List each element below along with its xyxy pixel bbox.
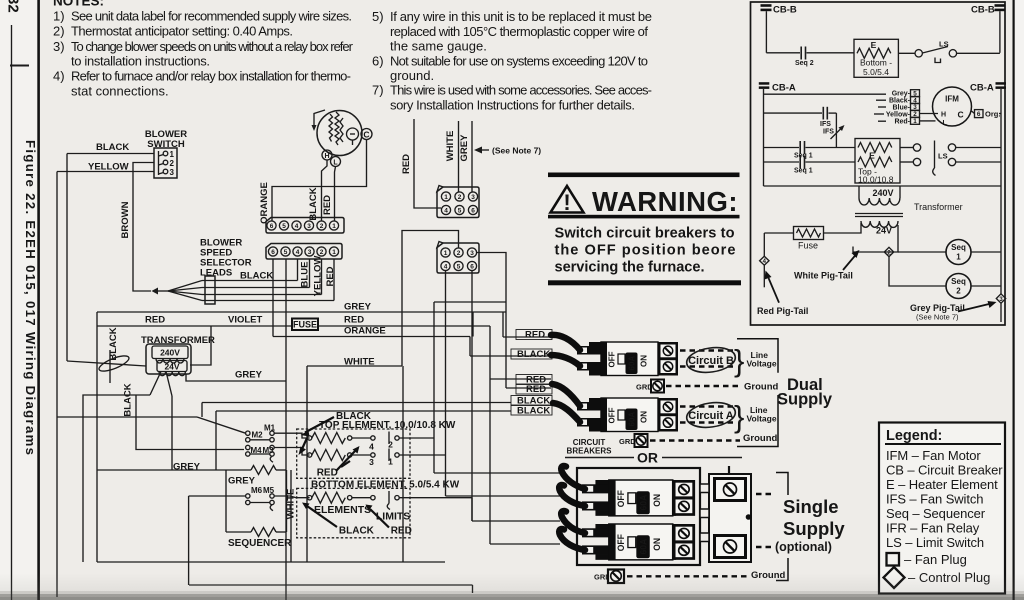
svg-text:3): 3) — [53, 39, 65, 54]
svg-text:RED: RED — [344, 315, 364, 326]
svg-text:servicing the furnace.: servicing the furnace. — [555, 260, 705, 276]
svg-text:3: 3 — [470, 250, 474, 257]
svg-text:2: 2 — [913, 111, 917, 118]
svg-text:240V: 240V — [160, 348, 180, 358]
svg-text:7): 7) — [372, 83, 384, 98]
svg-text:See unit data label for recomm: See unit data label for recommended supp… — [71, 9, 352, 24]
svg-text:3: 3 — [471, 194, 475, 201]
svg-text:the same gauge.: the same gauge. — [390, 39, 487, 54]
svg-text:1: 1 — [170, 150, 175, 159]
svg-text:Refer to furnace and/or relay: Refer to furnace and/or relay box instal… — [71, 69, 351, 84]
svg-text:1: 1 — [444, 194, 448, 201]
svg-text:6: 6 — [470, 264, 474, 271]
svg-text:Grey Pig-Tail: Grey Pig-Tail — [910, 303, 965, 313]
svg-text:H: H — [324, 153, 329, 160]
svg-text:Grey-: Grey- — [892, 91, 911, 98]
svg-text:6): 6) — [372, 54, 384, 69]
svg-text:BLACK: BLACK — [517, 349, 550, 360]
svg-text:Org.: Org. — [985, 110, 1000, 119]
svg-text:6: 6 — [977, 111, 981, 118]
svg-text:Seq 1: Seq 1 — [794, 168, 813, 175]
svg-text:Bottom -: Bottom - — [860, 58, 892, 68]
svg-text:4: 4 — [296, 249, 300, 256]
svg-text:1: 1 — [332, 249, 336, 256]
svg-text:5: 5 — [457, 264, 461, 271]
svg-text:6: 6 — [270, 223, 274, 230]
svg-text:3: 3 — [308, 249, 312, 256]
svg-text:2): 2) — [53, 24, 65, 39]
svg-text:Red-: Red- — [894, 119, 910, 126]
svg-text:Figure 22. E2EH 015, 017 Wirin: Figure 22. E2EH 015, 017 Wiring Diagrams — [23, 140, 38, 455]
svg-text:the OFF position beore: the OFF position beore — [555, 243, 736, 259]
svg-text:!: ! — [563, 190, 570, 215]
svg-text:IFS: IFS — [820, 121, 831, 128]
svg-text:BROWN: BROWN — [120, 201, 131, 238]
svg-text:If any wire in this unit is to: If any wire in this unit is to be replac… — [390, 9, 652, 24]
svg-text:24V: 24V — [164, 362, 179, 372]
svg-text:Red Pig-Tail: Red Pig-Tail — [757, 306, 808, 316]
svg-text:To change blower speeds on uni: To change blower speeds on units without… — [71, 39, 354, 54]
svg-text:4: 4 — [444, 264, 448, 271]
svg-text:FUSE: FUSE — [293, 320, 317, 330]
svg-text:RED: RED — [322, 195, 333, 215]
svg-text:stat connections.: stat connections. — [71, 84, 169, 99]
svg-text:5: 5 — [458, 208, 462, 215]
svg-text:10.0/10.8: 10.0/10.8 — [858, 175, 894, 185]
svg-text:Transformer: Transformer — [914, 202, 963, 212]
svg-text:C: C — [363, 130, 369, 140]
svg-text:GREY: GREY — [235, 370, 263, 381]
svg-text:ORANGE: ORANGE — [344, 326, 386, 337]
svg-text:CB-B: CB-B — [971, 5, 995, 16]
svg-text:Switch circuit breakers to: Switch circuit breakers to — [555, 226, 735, 242]
svg-text:sory Installation Instructions: sory Installation Instructions for furth… — [390, 98, 635, 113]
svg-text:ORANGE: ORANGE — [259, 182, 270, 224]
svg-text:240V: 240V — [872, 188, 893, 198]
svg-text:IFS: IFS — [823, 129, 834, 136]
svg-text:L: L — [333, 160, 338, 167]
svg-text:Ground: Ground — [744, 382, 778, 393]
svg-text:6: 6 — [271, 249, 275, 256]
svg-text:L: L — [943, 120, 948, 127]
svg-text:RED: RED — [401, 154, 412, 174]
svg-text:E: E — [871, 40, 877, 50]
svg-text:LS: LS — [938, 152, 948, 161]
svg-text:2: 2 — [457, 250, 461, 257]
svg-text:2: 2 — [320, 249, 324, 256]
svg-text:Blue-: Blue- — [893, 104, 911, 111]
svg-text:replaced with 105°C thermoplas: replaced with 105°C thermoplastic copper… — [390, 24, 648, 39]
svg-text:3: 3 — [913, 104, 917, 111]
svg-text:WARNING:: WARNING: — [592, 186, 738, 217]
svg-text:RED: RED — [526, 384, 546, 395]
svg-text:GREY: GREY — [459, 134, 470, 162]
svg-text:IFM: IFM — [945, 95, 959, 104]
svg-text:1): 1) — [53, 9, 65, 24]
svg-text:4: 4 — [444, 208, 448, 215]
svg-text:WHITE: WHITE — [445, 131, 456, 162]
svg-text:2: 2 — [458, 194, 462, 201]
svg-text:BLACK: BLACK — [96, 142, 129, 153]
svg-text:Seq 1: Seq 1 — [794, 153, 813, 160]
svg-text:Not suitable for use on system: Not suitable for use on systems exceedin… — [390, 54, 648, 69]
svg-text:3: 3 — [307, 223, 311, 230]
svg-text:24V: 24V — [876, 226, 892, 236]
svg-text:Thermostat anticipator setting: Thermostat anticipator setting: 0.40 Amp… — [71, 24, 293, 39]
svg-text:Yellow-: Yellow- — [886, 111, 911, 118]
svg-text:Seq: Seq — [951, 243, 966, 252]
svg-text:4): 4) — [53, 69, 65, 84]
svg-text:(See Note 7): (See Note 7) — [492, 146, 541, 156]
svg-text:1: 1 — [913, 118, 917, 125]
svg-text:to installation instructions.: to installation instructions. — [71, 54, 210, 69]
svg-text:E: E — [869, 151, 875, 161]
svg-text:5): 5) — [372, 9, 384, 24]
svg-text:3: 3 — [170, 168, 175, 177]
svg-text:1: 1 — [444, 250, 448, 257]
svg-text:RED: RED — [145, 315, 165, 326]
svg-text:VIOLET: VIOLET — [228, 315, 263, 326]
svg-text:4: 4 — [295, 223, 299, 230]
svg-text:Voltage: Voltage — [747, 359, 777, 369]
svg-text:5: 5 — [284, 249, 288, 256]
svg-text:5: 5 — [282, 223, 286, 230]
svg-text:BLACK: BLACK — [517, 405, 550, 416]
svg-text:Seq: Seq — [951, 277, 966, 286]
svg-text:White Pig-Tail: White Pig-Tail — [794, 271, 853, 281]
svg-text:Seq 2: Seq 2 — [795, 60, 814, 67]
svg-text:C: C — [958, 110, 964, 120]
svg-text:6: 6 — [471, 208, 475, 215]
svg-text:}: } — [734, 343, 744, 378]
svg-text:1: 1 — [332, 223, 336, 230]
svg-text:5: 5 — [913, 90, 917, 97]
svg-text:32: 32 — [5, 0, 22, 13]
svg-text:RED: RED — [525, 330, 545, 341]
svg-text:GREY: GREY — [344, 302, 372, 313]
svg-text:1: 1 — [956, 253, 961, 262]
svg-text:BLACK: BLACK — [308, 187, 319, 220]
svg-text:CB-A: CB-A — [970, 83, 994, 94]
svg-text:CB-B: CB-B — [773, 5, 797, 16]
svg-text:Fuse: Fuse — [798, 241, 818, 251]
svg-text:CB-A: CB-A — [772, 83, 796, 94]
svg-text:ground.: ground. — [390, 68, 434, 83]
svg-text:NOTES:: NOTES: — [53, 0, 104, 9]
svg-text:BLACK: BLACK — [108, 327, 119, 360]
svg-text:H: H — [941, 112, 946, 119]
svg-text:Supply: Supply — [777, 391, 833, 409]
svg-text:2: 2 — [320, 223, 324, 230]
svg-text:2: 2 — [170, 159, 175, 168]
svg-text:(See Note 7): (See Note 7) — [916, 313, 959, 322]
svg-text:2: 2 — [956, 287, 961, 296]
svg-text:5.0/5.4: 5.0/5.4 — [863, 67, 889, 77]
svg-text:This wire is used with some ac: This wire is used with some accessories.… — [390, 83, 652, 98]
svg-text:BLACK: BLACK — [123, 383, 134, 416]
svg-text:Circuit B: Circuit B — [688, 355, 734, 367]
